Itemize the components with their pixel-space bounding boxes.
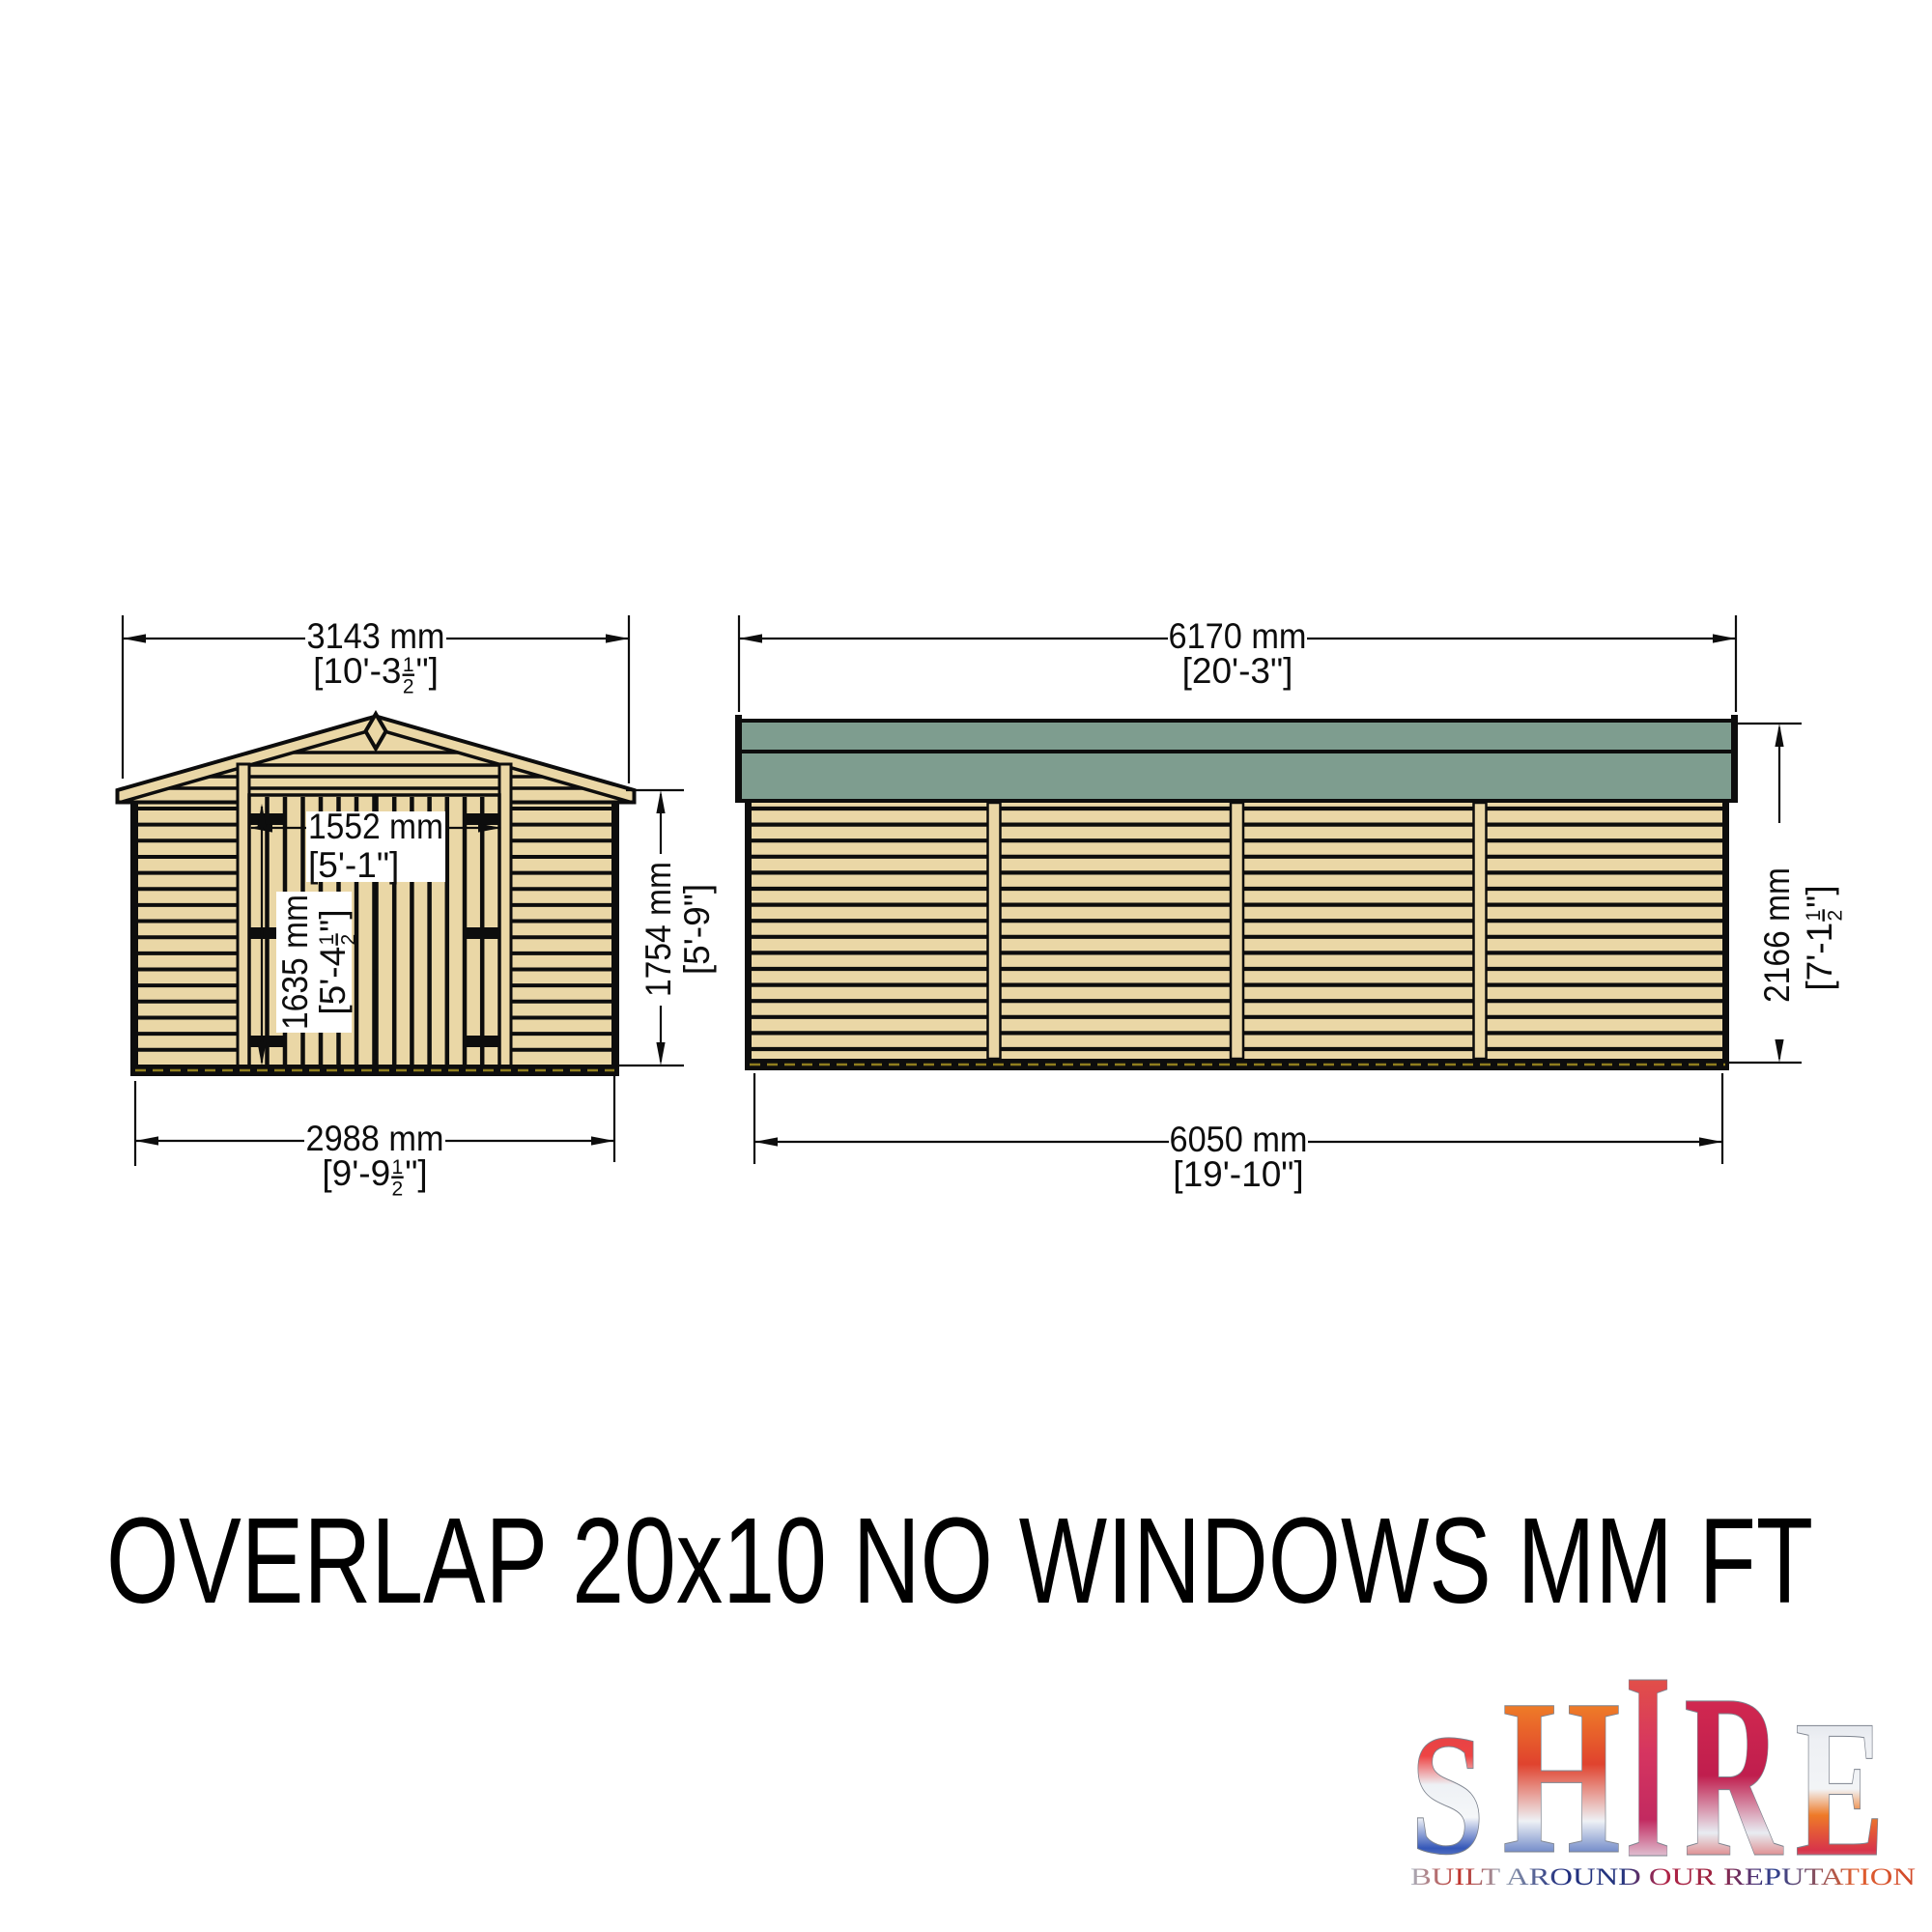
svg-text:[5'-1"]: [5'-1"] bbox=[308, 845, 399, 885]
svg-text:1: 1 bbox=[1803, 910, 1825, 922]
svg-text:"]: "] bbox=[416, 651, 439, 691]
svg-text:[7'-1: [7'-1 bbox=[1800, 923, 1839, 991]
svg-text:1: 1 bbox=[403, 654, 414, 676]
svg-text:[20'-3"]: [20'-3"] bbox=[1182, 651, 1293, 691]
svg-text:H: H bbox=[1502, 1653, 1621, 1900]
svg-text:2: 2 bbox=[392, 1179, 404, 1201]
svg-text:6050 mm: 6050 mm bbox=[1170, 1120, 1308, 1159]
svg-text:1754 mm: 1754 mm bbox=[639, 862, 678, 997]
svg-text:[5'-9"]: [5'-9"] bbox=[677, 884, 717, 975]
svg-text:3143 mm: 3143 mm bbox=[307, 616, 445, 656]
svg-text:2166 mm: 2166 mm bbox=[1757, 867, 1797, 1003]
svg-text:2: 2 bbox=[338, 934, 360, 946]
svg-text:"]: "] bbox=[313, 909, 353, 931]
svg-text:1552 mm: 1552 mm bbox=[308, 807, 443, 846]
svg-text:"]: "] bbox=[1800, 885, 1839, 907]
svg-text:2988 mm: 2988 mm bbox=[306, 1119, 444, 1158]
svg-text:[19'-10"]: [19'-10"] bbox=[1173, 1154, 1303, 1194]
svg-text:2: 2 bbox=[403, 676, 414, 698]
svg-text:OVERLAP 20x10 NO WINDOWS MM FT: OVERLAP 20x10 NO WINDOWS MM FT bbox=[106, 1492, 1813, 1629]
svg-text:6170 mm: 6170 mm bbox=[1169, 616, 1307, 656]
svg-text:[10'-3: [10'-3 bbox=[313, 651, 401, 691]
svg-text:[5'-4: [5'-4 bbox=[313, 947, 353, 1015]
svg-text:2: 2 bbox=[1825, 910, 1847, 922]
svg-text:1: 1 bbox=[392, 1156, 404, 1179]
svg-text:1635 mm: 1635 mm bbox=[275, 895, 315, 1030]
svg-text:S: S bbox=[1410, 1698, 1485, 1890]
svg-text:1: 1 bbox=[316, 934, 338, 946]
svg-text:"]: "] bbox=[405, 1153, 427, 1193]
svg-text:BUILT AROUND OUR REPUTATION: BUILT AROUND OUR REPUTATION bbox=[1410, 1864, 1916, 1890]
svg-text:[9'-9: [9'-9 bbox=[322, 1153, 390, 1193]
